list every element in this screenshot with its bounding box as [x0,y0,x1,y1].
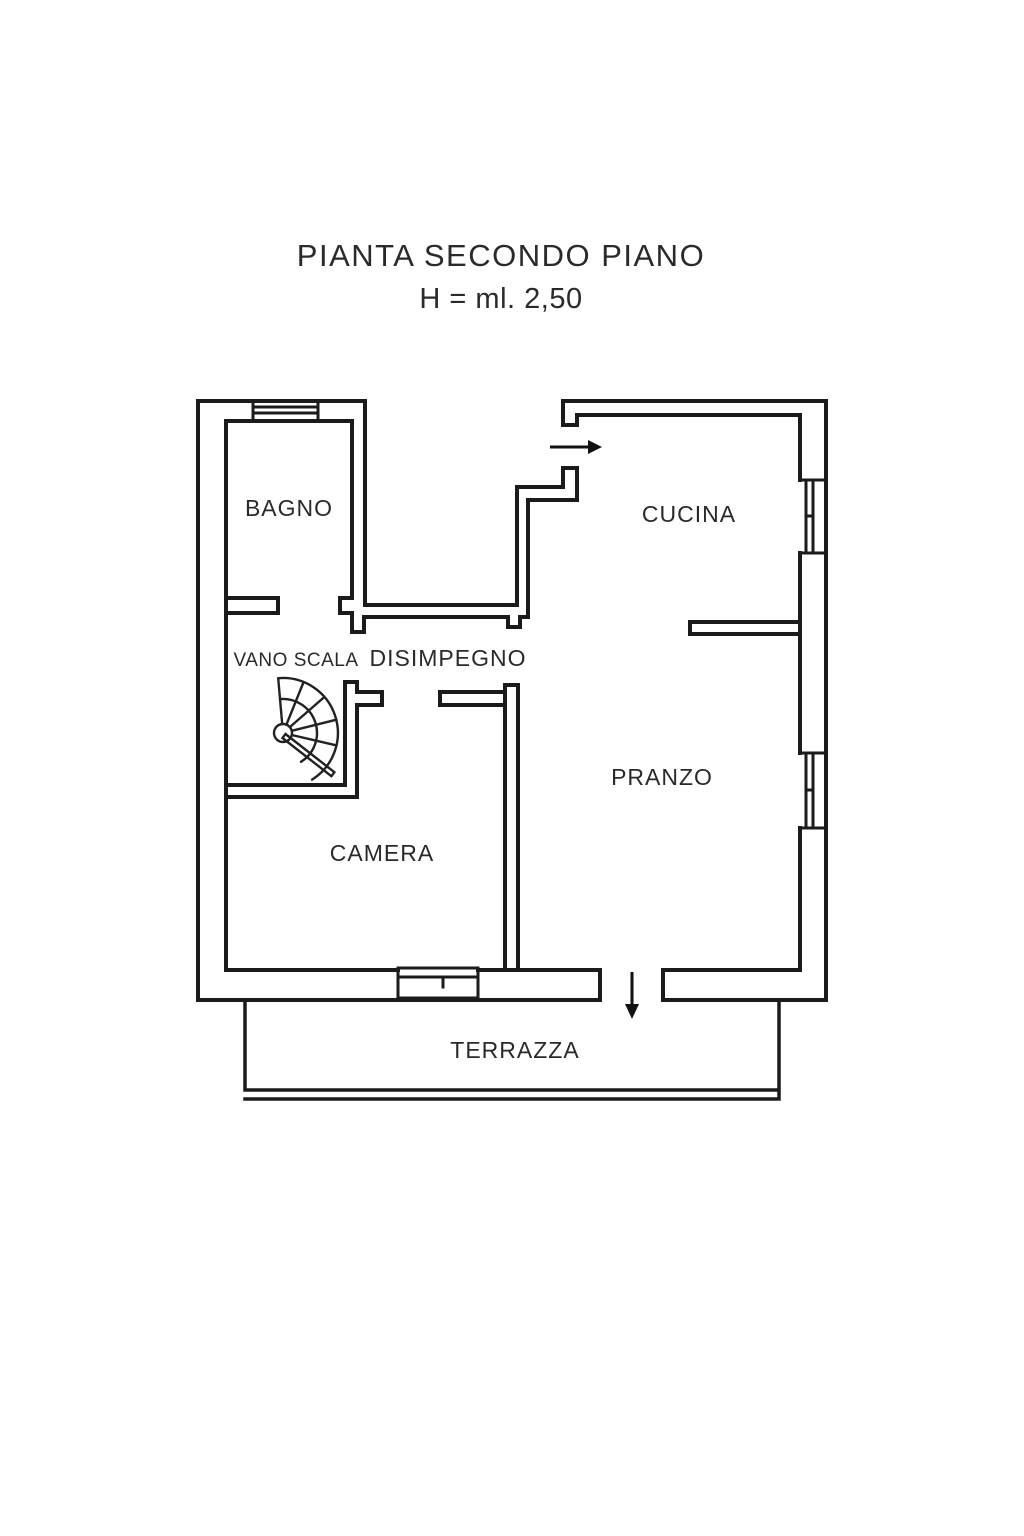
camera-top-wall [440,692,505,705]
room-label-cucina: CUCINA [642,501,736,527]
room-label-terrazza: TERRAZZA [450,1037,579,1063]
disimpegno-jamb-right [364,617,520,627]
vano-scala-right-wall [345,682,382,797]
room-label-camera: CAMERA [330,840,434,866]
room-label-bagno: BAGNO [245,495,333,521]
height-annotation: H = ml. 2,50 [419,283,582,315]
room-label-pranzo: PRANZO [611,764,713,790]
floor-plan-drawing: PIANTA SECONDO PIANO H = ml. 2,50 [0,0,1024,1536]
spiral-staircase-icon [274,678,338,780]
landing-stepped-wall [365,401,563,605]
floor-plan-document: PIANTA SECONDO PIANO H = ml. 2,50 [0,0,1024,1536]
entry-jamb-inner-step [520,468,577,617]
bagno-top-window [253,401,318,421]
room-label-disimpegno: DISIMPEGNO [370,645,527,671]
room-label-vano-scala: VANO SCALA [233,650,358,671]
pranzo-right-window [800,753,826,828]
outer-wall-right [563,401,826,1000]
cucina-pranzo-wall [690,622,800,634]
vano-scala-bottom-wall [226,785,357,797]
bottom-wall-inner [226,970,800,1000]
page-title: PIANTA SECONDO PIANO [297,238,705,273]
entry-arrow-icon [550,440,602,454]
terrace-arrow-icon [625,972,639,1019]
disimpegno-jamb-left [352,617,364,632]
bagno-bottom-wall-right [340,598,352,613]
bagno-bottom-wall-left [226,598,278,613]
cucina-right-window [800,480,826,553]
camera-pranzo-divider [505,685,518,970]
camera-bottom-window [398,968,478,998]
outer-wall-left [198,401,600,1000]
